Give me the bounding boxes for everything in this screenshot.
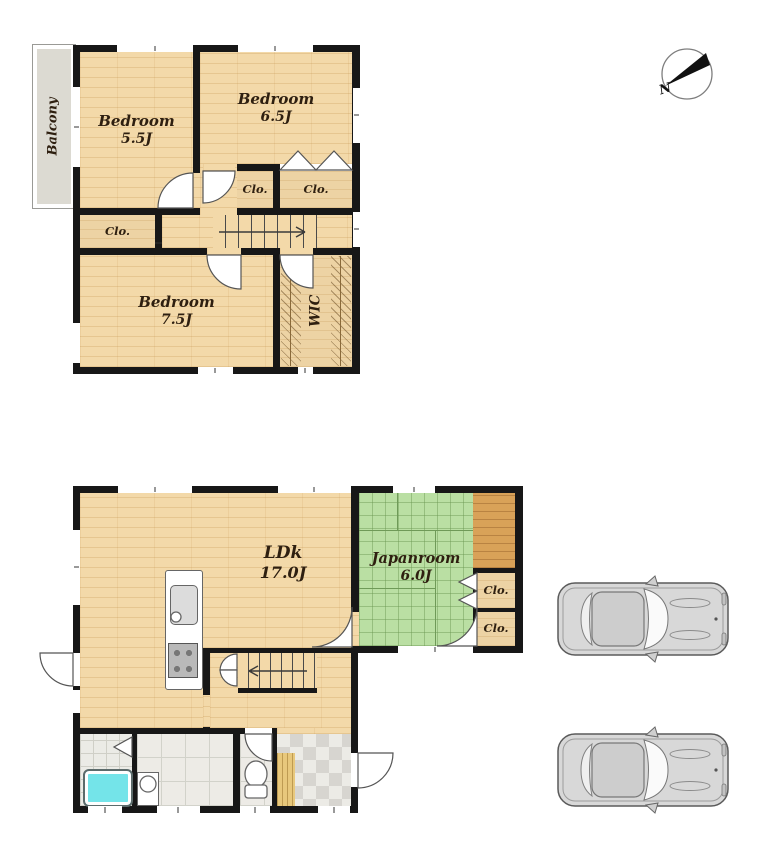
car-1 <box>556 580 732 660</box>
car-2 <box>556 731 732 811</box>
balcony-label: Balcony <box>47 98 62 156</box>
sink-faucet <box>171 612 181 622</box>
door-arc-outside <box>40 653 73 686</box>
stairs-up-arrow <box>219 227 305 237</box>
washbasin <box>140 776 156 792</box>
door-arc <box>207 255 241 289</box>
folding-door <box>459 573 477 591</box>
stairs-down-arrow <box>249 666 307 676</box>
bathroom-folding-door <box>114 737 132 757</box>
folding-door <box>280 151 316 170</box>
floor1-plan: LDk 17.0J Japanroom 6.0J Clo. Clo. <box>73 486 523 817</box>
folding-door <box>459 591 477 609</box>
floor2-plan: Balcony Bedroom 5.5J Bedroom 6.5J Clo. C… <box>33 45 360 374</box>
double-door-leaf <box>220 654 237 670</box>
folding-door <box>316 151 352 170</box>
toilet-bowl <box>245 761 267 787</box>
floor1-symbols <box>73 486 523 817</box>
toilet-tank <box>245 785 267 798</box>
balcony: Balcony <box>33 45 75 208</box>
door-arc <box>203 171 235 203</box>
door-arc <box>312 607 352 647</box>
floor-plan-page: Balcony Bedroom 5.5J Bedroom 6.5J Clo. C… <box>0 0 768 860</box>
stairs-edge <box>238 688 317 693</box>
floor2-symbols <box>73 45 360 374</box>
door-arc <box>437 606 477 646</box>
entrance-door-arc <box>358 753 393 788</box>
door-arc <box>245 734 272 761</box>
door-arc <box>158 173 193 208</box>
compass: N <box>658 44 716 104</box>
window-ticks <box>74 46 359 373</box>
double-door-leaf <box>220 670 237 686</box>
door-arc <box>280 255 313 288</box>
